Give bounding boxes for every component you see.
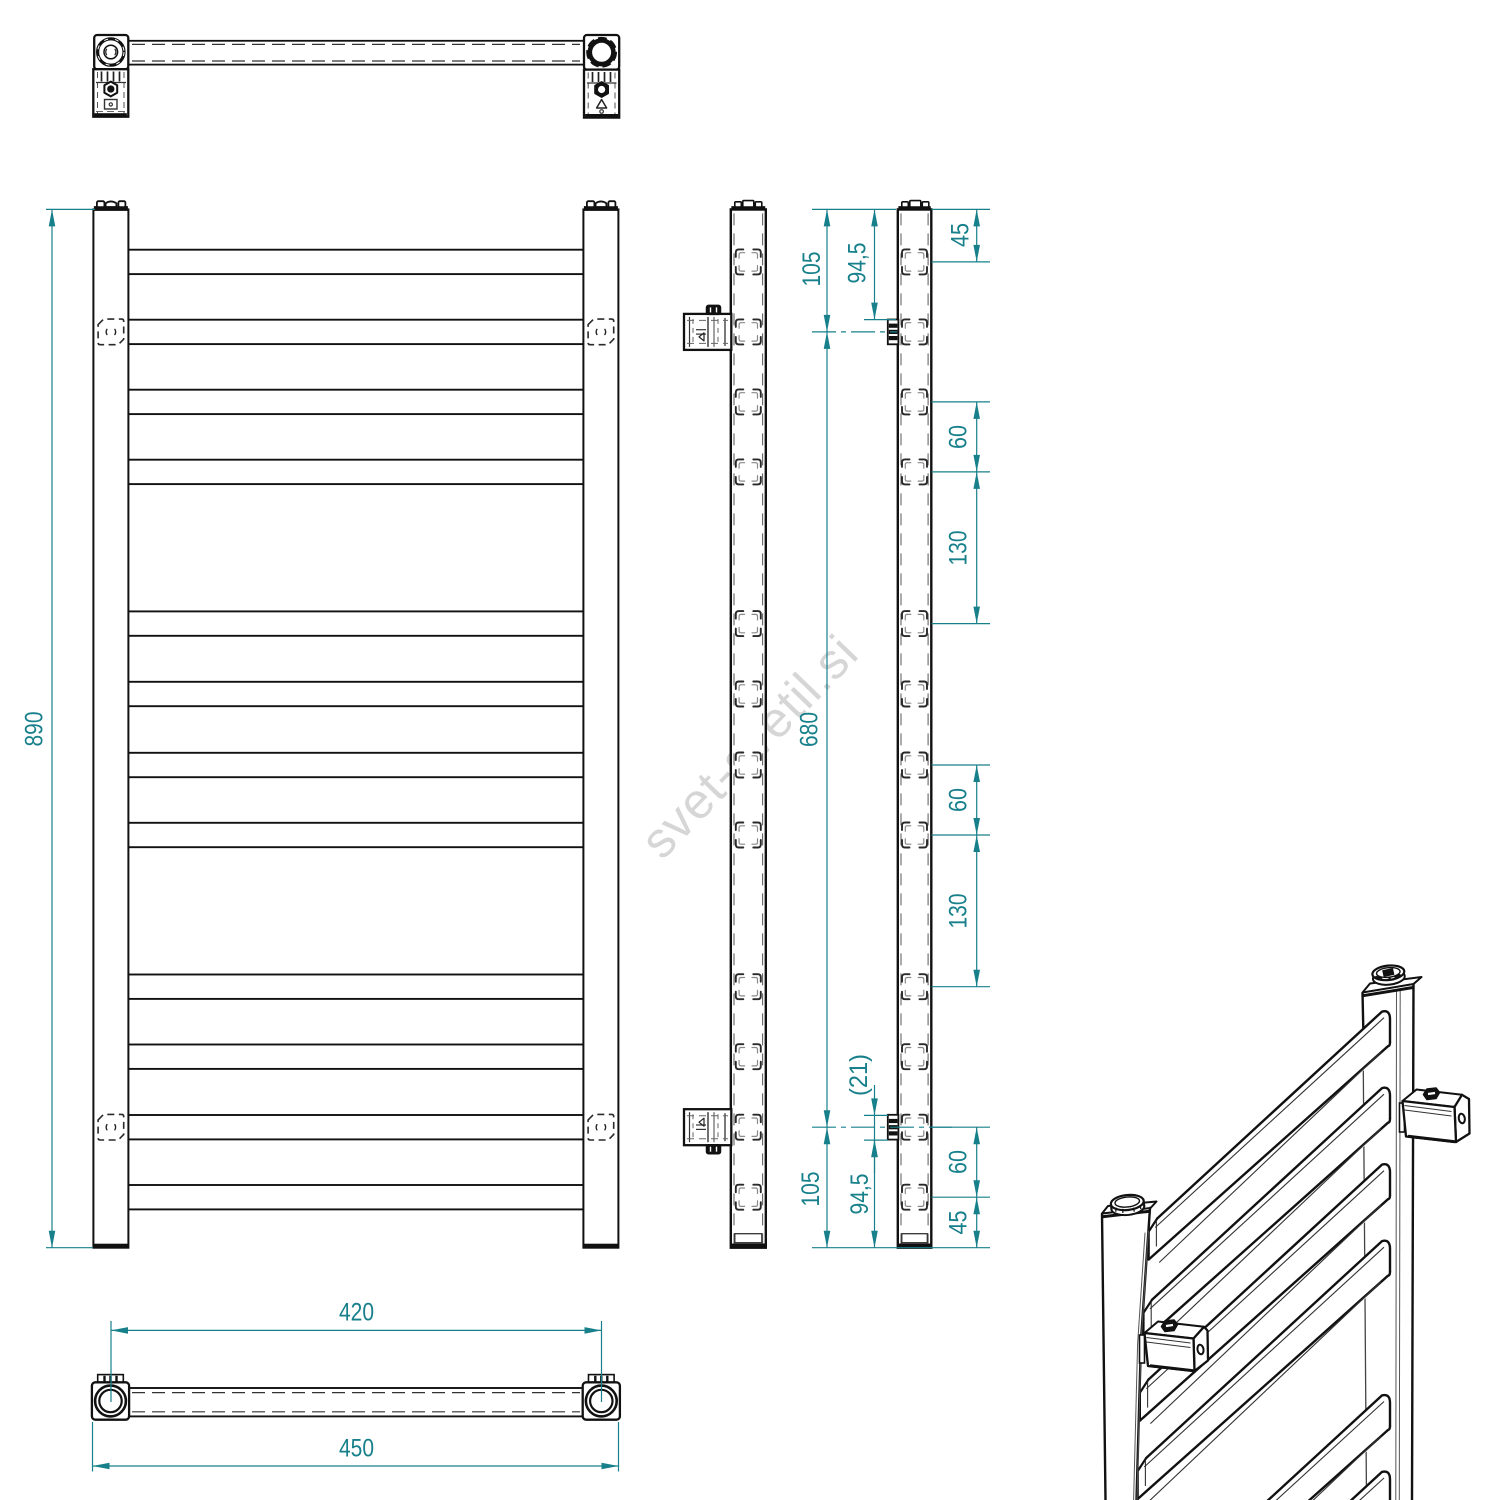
svg-text:450: 450 bbox=[339, 1435, 374, 1463]
svg-text:45: 45 bbox=[945, 1211, 973, 1235]
svg-text:680: 680 bbox=[796, 712, 824, 747]
svg-text:130: 130 bbox=[945, 894, 973, 929]
svg-text:105: 105 bbox=[797, 1172, 825, 1207]
svg-text:45: 45 bbox=[947, 223, 975, 247]
svg-text:94,5: 94,5 bbox=[846, 1174, 874, 1215]
svg-text:60: 60 bbox=[945, 788, 973, 812]
svg-text:60: 60 bbox=[945, 425, 973, 449]
svg-text:105: 105 bbox=[798, 252, 826, 287]
svg-text:890: 890 bbox=[21, 712, 49, 747]
svg-text:60: 60 bbox=[945, 1150, 973, 1174]
svg-text:(21): (21) bbox=[845, 1054, 873, 1096]
svg-text:130: 130 bbox=[945, 531, 973, 566]
svg-text:420: 420 bbox=[339, 1299, 374, 1327]
svg-text:94,5: 94,5 bbox=[844, 243, 872, 284]
